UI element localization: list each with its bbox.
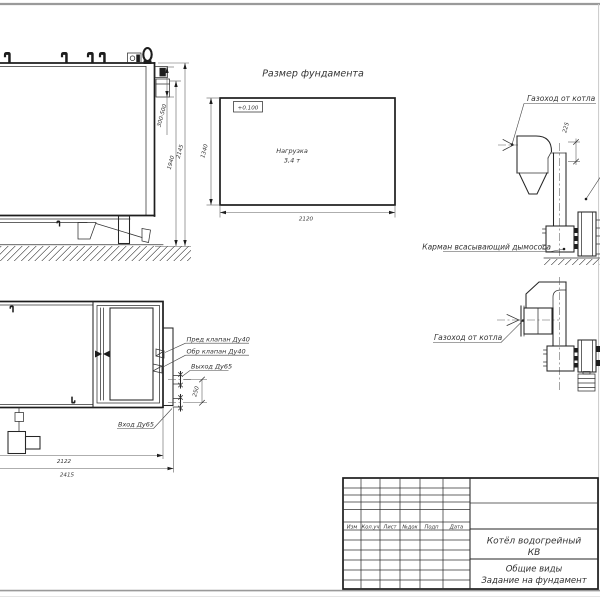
inlet-label: Вход Ду65 xyxy=(118,421,154,429)
door-panel xyxy=(110,308,153,400)
product-name-line2: КВ xyxy=(528,548,541,558)
lifting-hook-icon xyxy=(4,52,11,63)
col-list: Лист xyxy=(382,524,397,530)
suction-pocket-plan xyxy=(547,346,574,371)
load-label: Нагрузка xyxy=(276,147,308,155)
boiler-plan-view: Пред клапан Ду40 Обр клапан Ду40 Выход Д… xyxy=(0,302,250,479)
fan-plan xyxy=(578,340,596,372)
dim-pipe-spacing: 250 xyxy=(192,385,201,397)
duct-label: Газоход от котла xyxy=(434,333,503,342)
lifting-hook-icon xyxy=(61,52,68,63)
sheet-border xyxy=(0,4,600,597)
drawing-sheet: 300-500 1940 2145 Размер фундамента +0.1… xyxy=(0,0,600,600)
col-data: Дата xyxy=(449,524,463,530)
technical-drawing-canvas: 300-500 1940 2145 Размер фундамента +0.1… xyxy=(0,0,600,600)
foundation-plan: Размер фундамента +0.100 Нагрузка 3,4 т … xyxy=(200,69,395,223)
col-podp: Подп xyxy=(424,524,439,530)
dim-body-length: 2122 xyxy=(57,459,72,465)
col-izm: Изм xyxy=(347,524,358,530)
dim-foundation-width: 1340 xyxy=(200,143,210,159)
motor-plan xyxy=(578,374,595,391)
product-name-line1: Котёл водогрейный xyxy=(487,537,582,547)
rear-flange-plate xyxy=(163,328,173,406)
lifting-hook-icon xyxy=(99,52,106,63)
col-ndok: №док xyxy=(401,524,418,530)
dim-body-height: 1940 xyxy=(167,155,177,171)
lifting-hook-icon xyxy=(87,52,94,63)
cyclone-elbow xyxy=(517,136,552,194)
col-koluch: Кол.уч xyxy=(362,524,380,530)
doc-type-line2: Задание на фундамент xyxy=(481,576,587,586)
duct-label: Газоход от котла xyxy=(527,94,596,103)
dim-total-length: 2415 xyxy=(60,473,75,479)
flue-duct-plan-view: Газоход от котла xyxy=(433,277,600,391)
side-view-dimensions: 300-500 1940 2145 xyxy=(155,63,191,247)
doc-type-line1: Общие виды xyxy=(506,565,563,575)
dim-foundation-length: 2120 xyxy=(299,217,314,223)
fan-motor xyxy=(596,220,600,254)
dim-duct-offset: 225 xyxy=(562,121,571,133)
load-value: 3,4 т xyxy=(284,157,300,165)
plan-hook-icon xyxy=(10,306,14,313)
check-valve-stub xyxy=(153,364,162,373)
drain-hook-icon xyxy=(56,221,60,227)
boiler-plan-outline xyxy=(0,302,163,408)
title-block: Изм Кол.уч Лист №док Подп Дата Котёл вод… xyxy=(343,478,598,589)
boiler-side-view: 300-500 1940 2145 xyxy=(0,48,191,247)
pocket-label: Карман всасывающий дымососа xyxy=(422,243,551,252)
plan-hook-icon xyxy=(71,397,75,404)
support-post xyxy=(119,216,130,244)
duct-elbow xyxy=(526,282,566,308)
safety-valve-label: Пред клапан Ду40 xyxy=(187,336,250,344)
outlet-label: Выход Ду65 xyxy=(191,363,232,371)
dim-total-height: 2145 xyxy=(176,144,186,160)
elevation-mark: +0.100 xyxy=(238,105,259,111)
flue-duct-side-view: Газоход от котла xyxy=(422,94,600,258)
base-support xyxy=(78,223,96,240)
check-valve-label: Обр клапан Ду40 xyxy=(187,348,246,356)
lifting-eye-icon xyxy=(143,48,151,61)
smoke-exhauster-fan xyxy=(578,212,596,256)
burner xyxy=(8,408,40,454)
foundation-title: Размер фундамента xyxy=(262,69,364,80)
